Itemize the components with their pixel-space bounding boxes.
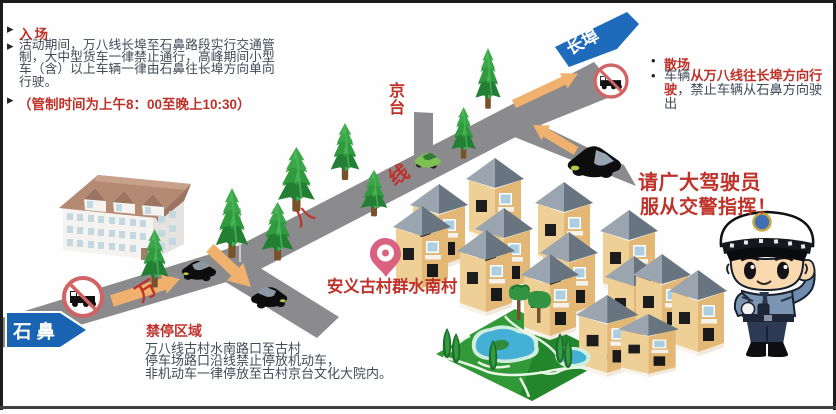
svg-text:石鼻: 石鼻 xyxy=(12,321,60,342)
